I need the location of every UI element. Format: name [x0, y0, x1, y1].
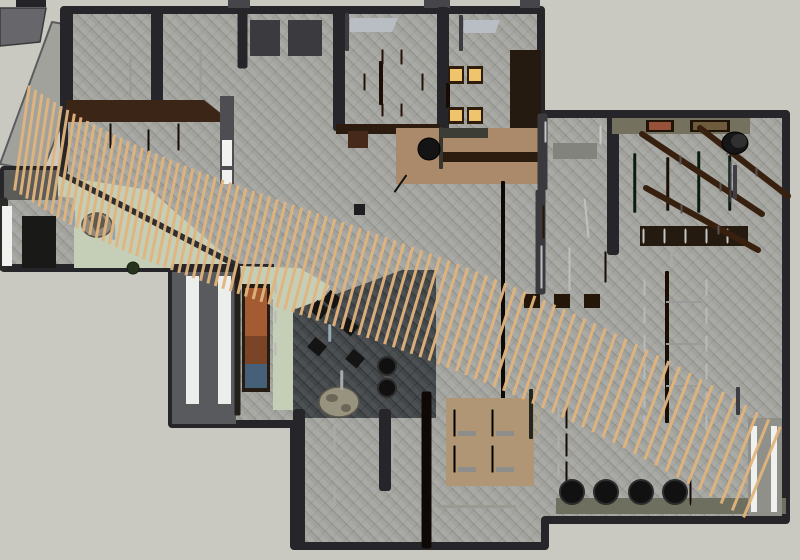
dining-chair-w4 — [422, 74, 423, 90]
hall-door-panel-1 — [222, 140, 232, 166]
office-desk — [543, 206, 544, 238]
conf-chair-l1 — [644, 280, 645, 295]
stone-spot-2 — [341, 404, 351, 412]
office-bed-2 — [541, 246, 542, 288]
restroom-panel-1 — [334, 424, 335, 454]
nook-table-4 — [492, 446, 493, 472]
host-column-top — [538, 410, 539, 434]
skylight-west — [346, 14, 348, 50]
zen-plant — [127, 262, 139, 274]
hall-chair-cluster-1 — [110, 124, 111, 148]
side-chair-1 — [558, 409, 559, 420]
conf-chair-l2 — [644, 308, 645, 323]
spa-mat-2 — [698, 152, 700, 212]
walnut-bar — [66, 100, 232, 122]
host-column — [530, 390, 532, 438]
wood-block — [424, 394, 429, 546]
lounge-table-1 — [329, 325, 331, 341]
spa-bench-seat-2 — [664, 229, 665, 243]
core-inset-1 — [250, 20, 280, 56]
nook-seat-3 — [458, 467, 476, 472]
corridor-light-panel-left — [186, 276, 199, 404]
artwork-mid — [245, 336, 267, 364]
nook-seat-4 — [496, 467, 514, 472]
se-wall-slab — [737, 388, 739, 414]
treatment-room-north — [540, 116, 545, 188]
hall-chair-cluster-2 — [148, 130, 149, 154]
roof-slab-dark — [0, 8, 46, 46]
dining-chair-w1 — [382, 50, 383, 64]
beam-clip-6 — [718, 226, 719, 234]
dining-chair-w3 — [364, 74, 365, 90]
room-a1 — [64, 10, 70, 100]
left-wing-doorway — [22, 216, 56, 268]
artwork-bottom — [245, 364, 267, 388]
ottoman-3 — [629, 480, 653, 504]
dining-chair-w2 — [401, 50, 402, 64]
roof-vent-2 — [424, 0, 450, 8]
spa-room — [610, 118, 616, 252]
roof-vent-1 — [228, 0, 250, 8]
lit-chair-seat-3 — [450, 110, 462, 121]
ottoman-1 — [560, 480, 584, 504]
skylight-east-glass — [464, 20, 500, 33]
nook-table-2 — [492, 410, 493, 436]
beam-clip-1 — [680, 156, 681, 164]
left-wing-door-panel — [2, 206, 12, 266]
hall-chair-cluster-3 — [178, 124, 179, 150]
conf-chair-r2 — [706, 308, 707, 323]
spa-cylinder-top — [731, 134, 747, 148]
restroom-panel-3 — [334, 486, 335, 506]
floor-plan-canvas — [0, 0, 800, 560]
side-chair-3 — [558, 465, 559, 476]
spa-bench-seat-1 — [643, 229, 644, 243]
beam-clip-2 — [720, 183, 721, 191]
lit-chair-seat-2 — [469, 69, 481, 81]
beam-clip-5 — [681, 205, 682, 213]
ottoman-4 — [663, 480, 687, 504]
spa-bench-seat-4 — [706, 229, 707, 243]
treatment-bed-n1 — [545, 122, 546, 142]
hall-stool-2 — [554, 294, 570, 308]
spa-mat-1 — [634, 154, 636, 212]
corridor-light-panel-right — [218, 276, 231, 404]
roof-vent-3 — [520, 0, 540, 8]
stone-spot-1 — [326, 394, 338, 402]
skylight-east — [460, 16, 462, 50]
dining-table-east — [447, 84, 449, 107]
lounge-ottoman-1 — [378, 357, 396, 375]
dining-chair-w6 — [401, 104, 402, 116]
elevator-core — [240, 10, 245, 66]
bench-seat-2 — [275, 311, 276, 323]
stone-feature — [319, 387, 359, 417]
conf-chair-l3 — [644, 336, 645, 351]
restroom-2 — [382, 412, 388, 488]
ottoman-2 — [594, 480, 618, 504]
hall-small-table — [354, 204, 365, 215]
dining-nook-rug — [446, 398, 534, 486]
beam-clip-4 — [756, 168, 757, 176]
restroom-3 — [296, 480, 302, 544]
kitchen-counter-top — [440, 128, 488, 138]
treatment-counter-n — [553, 143, 597, 159]
kitchen-box — [348, 131, 368, 148]
conf-chair-r3 — [706, 336, 707, 351]
restroom-panel-2 — [392, 422, 393, 466]
hvac-duct-cap — [730, 162, 731, 202]
hvac-duct — [734, 166, 736, 198]
side-chair-2 — [558, 437, 559, 448]
nook-seat-1 — [458, 431, 476, 436]
core-inset-2 — [288, 20, 322, 56]
roof-bar — [16, 0, 46, 7]
conf-chair-l4 — [644, 364, 645, 379]
lit-chair-seat-1 — [450, 69, 462, 81]
conf-chair-r4 — [706, 364, 707, 379]
office-chair — [605, 252, 606, 282]
kitchen-dark-band-east — [440, 152, 541, 162]
restroom-1 — [296, 412, 302, 480]
nook-table-1 — [454, 410, 455, 436]
office-bed-3 — [569, 248, 570, 290]
wood-floor-line — [438, 505, 516, 508]
conference-cabinet — [671, 252, 672, 268]
lit-chair-seat-4 — [469, 110, 481, 121]
dining-table-west — [380, 62, 382, 104]
room-a2-window — [200, 50, 201, 92]
side-table-2 — [566, 434, 567, 456]
skylight-west-glass — [350, 18, 398, 32]
spa-bench-seat-3 — [685, 229, 686, 243]
floor-plan-render — [0, 0, 800, 560]
nook-seat-2 — [496, 431, 514, 436]
conf-chair-r1 — [706, 280, 707, 295]
walnut-partition — [502, 182, 504, 432]
kitchen-round-stool — [418, 138, 440, 160]
lounge-ottoman-2 — [378, 379, 396, 397]
dining-room-west — [336, 10, 342, 128]
hall-stool-3 — [584, 294, 600, 308]
room-a2 — [154, 10, 160, 100]
room-a1-window — [130, 55, 131, 97]
conf-chair-r6 — [706, 416, 707, 431]
lounge-table-2 — [341, 371, 343, 389]
dining-chair-w5 — [382, 104, 383, 116]
picture-art-1 — [649, 122, 671, 130]
bench-seat-3 — [275, 343, 276, 355]
nook-table-3 — [454, 446, 455, 472]
treatment-bed-n2 — [600, 126, 601, 144]
